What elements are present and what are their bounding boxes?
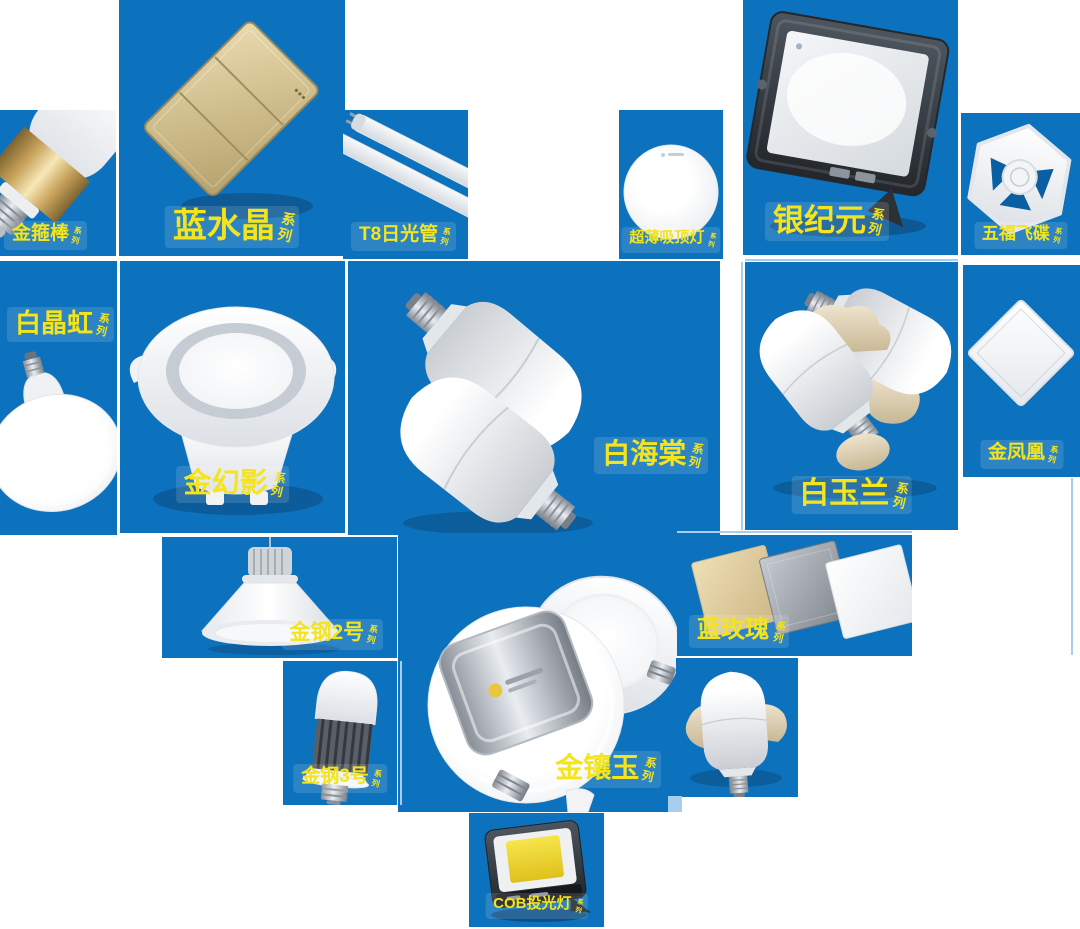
series-name: 金镶玉 [555, 754, 639, 782]
series-label: 金箍棒 系列 [4, 221, 87, 250]
tile-jin-gang-3[interactable]: 金钢3号 系列 [283, 661, 397, 805]
product-bulb-on-stone [676, 658, 798, 797]
series-label: COB投光灯 系列 [485, 893, 588, 919]
tile-t8-ri-guang-guan[interactable]: T8日光管 系列 [343, 110, 468, 259]
series-suffix: 系列 [705, 232, 715, 250]
series-label: T8日光管 系列 [351, 222, 456, 251]
accent-corner-block [668, 796, 682, 812]
series-label: 金钢3号 系列 [293, 764, 387, 793]
accent-line-horizontal [677, 531, 912, 533]
series-name: 白晶虹 [15, 310, 93, 336]
series-name: 金箍棒 [12, 224, 69, 243]
series-suffix: 系列 [365, 624, 379, 647]
series-suffix: 系列 [769, 619, 785, 645]
series-suffix: 系列 [686, 441, 704, 471]
series-name: 银纪元 [773, 205, 866, 236]
series-suffix: 系列 [573, 898, 583, 916]
series-name: 白海棠 [602, 440, 686, 468]
series-suffix: 系列 [93, 311, 110, 339]
series-label: 白晶虹 系列 [7, 307, 114, 342]
accent-line-horizontal [745, 259, 958, 261]
series-label: 金幻影 系列 [176, 466, 290, 503]
accent-line-vertical [741, 262, 743, 530]
series-name: 蓝水晶 [173, 209, 275, 243]
accent-line-vertical [400, 661, 402, 805]
tile-bai-yu-lan[interactable]: 白玉兰 系列 [745, 262, 958, 530]
series-suffix: 系列 [639, 755, 657, 785]
accent-line-vertical [1071, 478, 1073, 655]
series-label: 金钢2号 系列 [282, 619, 384, 650]
series-suffix: 系列 [439, 226, 452, 247]
series-name: 金钢3号 [301, 767, 369, 786]
tile-jin-xiang-yu[interactable]: 金镶玉 系列 [398, 533, 677, 812]
poster-canvas: 金箍棒 系列 蓝水晶 系列 [0, 0, 1080, 929]
series-suffix: 系列 [866, 206, 886, 238]
series-name: 五福飞碟 [982, 225, 1050, 242]
series-label: 蓝水晶 系列 [165, 206, 299, 248]
series-name: 金钢2号 [290, 622, 365, 643]
tile-chao-bao-xi-ding-deng[interactable]: 超薄吸顶灯 系列 [619, 110, 723, 259]
series-suffix: 系列 [274, 210, 296, 245]
tile-bai-jing-hong[interactable]: 白晶虹 系列 [0, 261, 117, 535]
series-name: 白玉兰 [799, 479, 889, 509]
series-label: 超薄吸顶灯 系列 [621, 227, 720, 253]
series-label: 五福飞碟 系列 [974, 222, 1067, 249]
tile-cob-tou-guang-deng[interactable]: COB投光灯 系列 [469, 813, 604, 927]
series-suffix: 系列 [70, 225, 83, 246]
tile-bai-hai-tang[interactable]: 白海棠 系列 [348, 261, 720, 535]
series-label: 金凤凰 系列 [980, 440, 1063, 469]
tile-jin-gang-2[interactable]: 金钢2号 系列 [162, 537, 397, 658]
tile-yin-ji-yuan[interactable]: 银纪元 系列 [743, 0, 958, 255]
series-name: T8日光管 [359, 225, 438, 244]
series-label: 白海棠 系列 [594, 437, 708, 474]
tile-lan-shui-jing[interactable]: 蓝水晶 系列 [119, 0, 345, 256]
series-name: 超薄吸顶灯 [629, 230, 704, 245]
tile-jin-gu-bang[interactable]: 金箍棒 系列 [0, 110, 116, 256]
series-label: 白玉兰 系列 [791, 476, 912, 514]
tile-jin-huan-ying[interactable]: 金幻影 系列 [120, 261, 345, 533]
series-label: 蓝玫瑰 系列 [689, 615, 789, 648]
series-name: 蓝玫瑰 [697, 618, 769, 642]
series-label: 金镶玉 系列 [547, 751, 661, 788]
tile-bulb-on-stone[interactable] [676, 658, 798, 797]
tile-lan-mei-gui[interactable]: 蓝玫瑰 系列 [677, 535, 912, 656]
series-label: 银纪元 系列 [765, 202, 889, 241]
series-name: 金幻影 [184, 469, 268, 497]
series-suffix: 系列 [1046, 444, 1059, 465]
series-suffix: 系列 [889, 480, 908, 511]
product-ufo-disc-bulb [0, 261, 117, 535]
tile-jin-feng-huang[interactable]: 金凤凰 系列 [963, 265, 1080, 477]
series-name: 金凤凰 [988, 443, 1045, 462]
series-suffix: 系列 [267, 470, 285, 500]
series-suffix: 系列 [1051, 226, 1062, 245]
tile-wu-fu-fei-die[interactable]: 五福飞碟 系列 [961, 113, 1080, 255]
series-suffix: 系列 [370, 768, 383, 789]
series-name: COB投光灯 [493, 896, 571, 911]
product-t-bulbs [348, 261, 720, 535]
